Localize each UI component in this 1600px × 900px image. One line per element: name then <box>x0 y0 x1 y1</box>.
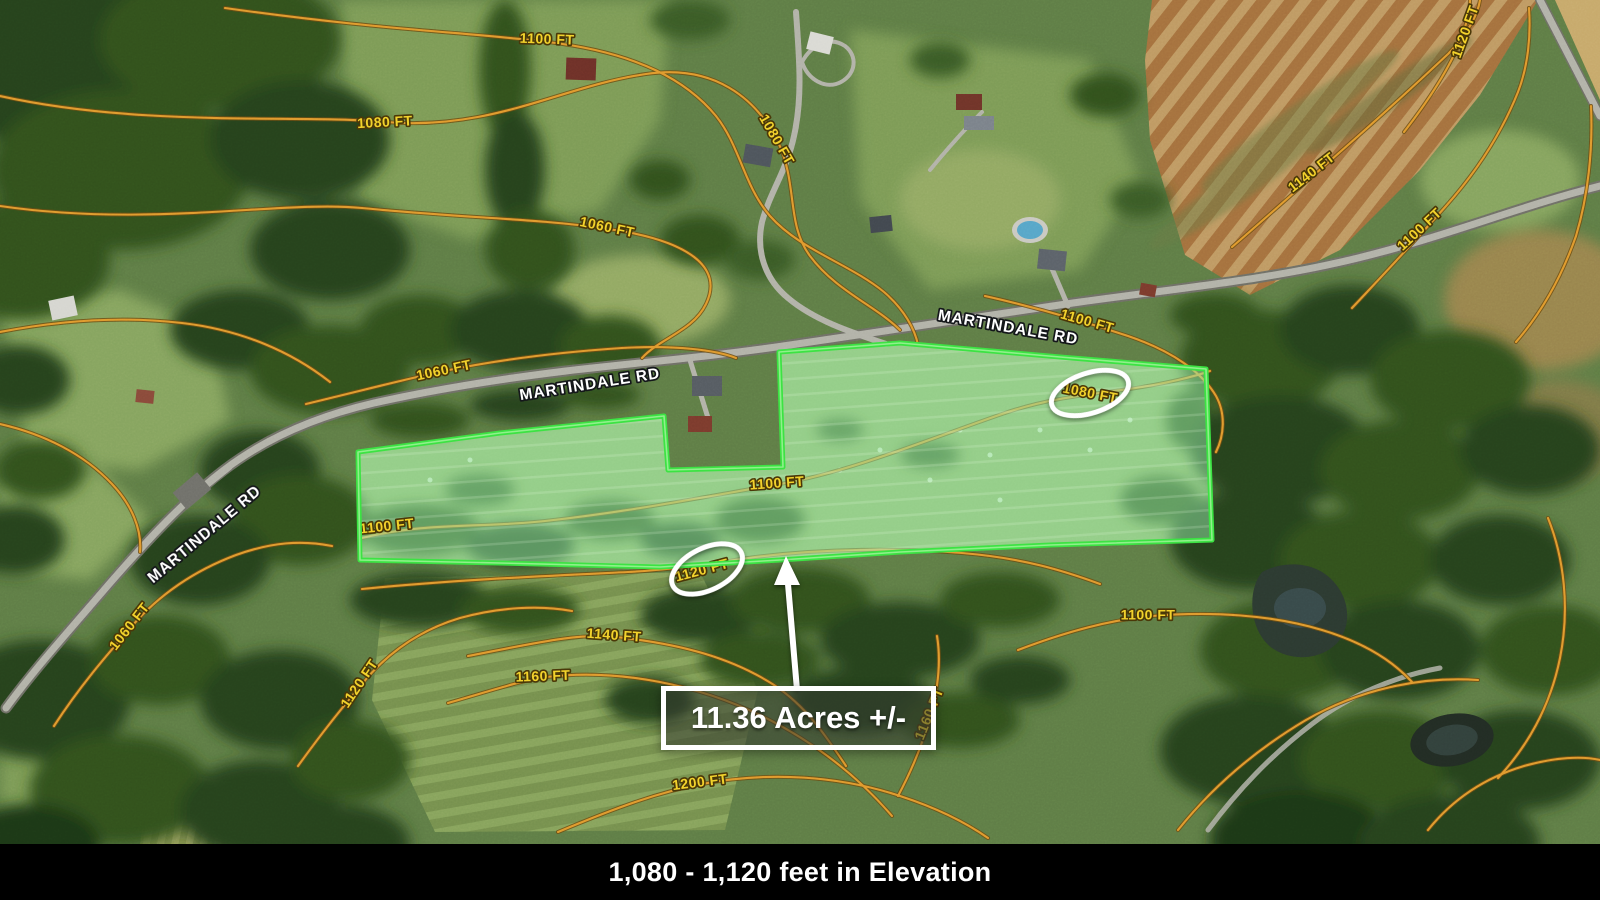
acreage-callout: 11.36 Acres +/- <box>661 686 936 750</box>
elevation-range-bar: 1,080 - 1,120 feet in Elevation <box>0 844 1600 900</box>
listing-map-graphic: 1100 FT1080 FT1080 FT1060 FT1140 FT1100 … <box>0 0 1600 900</box>
contour-elevation-label: 1100 FT <box>1121 607 1176 623</box>
contour-elevation-label: 1080 FT <box>357 112 413 131</box>
contour-elevation-label: 1160 FT <box>515 667 570 685</box>
contour-elevation-label: 1100 FT <box>519 30 574 48</box>
elevation-range-text: 1,080 - 1,120 feet in Elevation <box>609 857 992 888</box>
acreage-value: 11.36 Acres +/- <box>691 700 906 736</box>
